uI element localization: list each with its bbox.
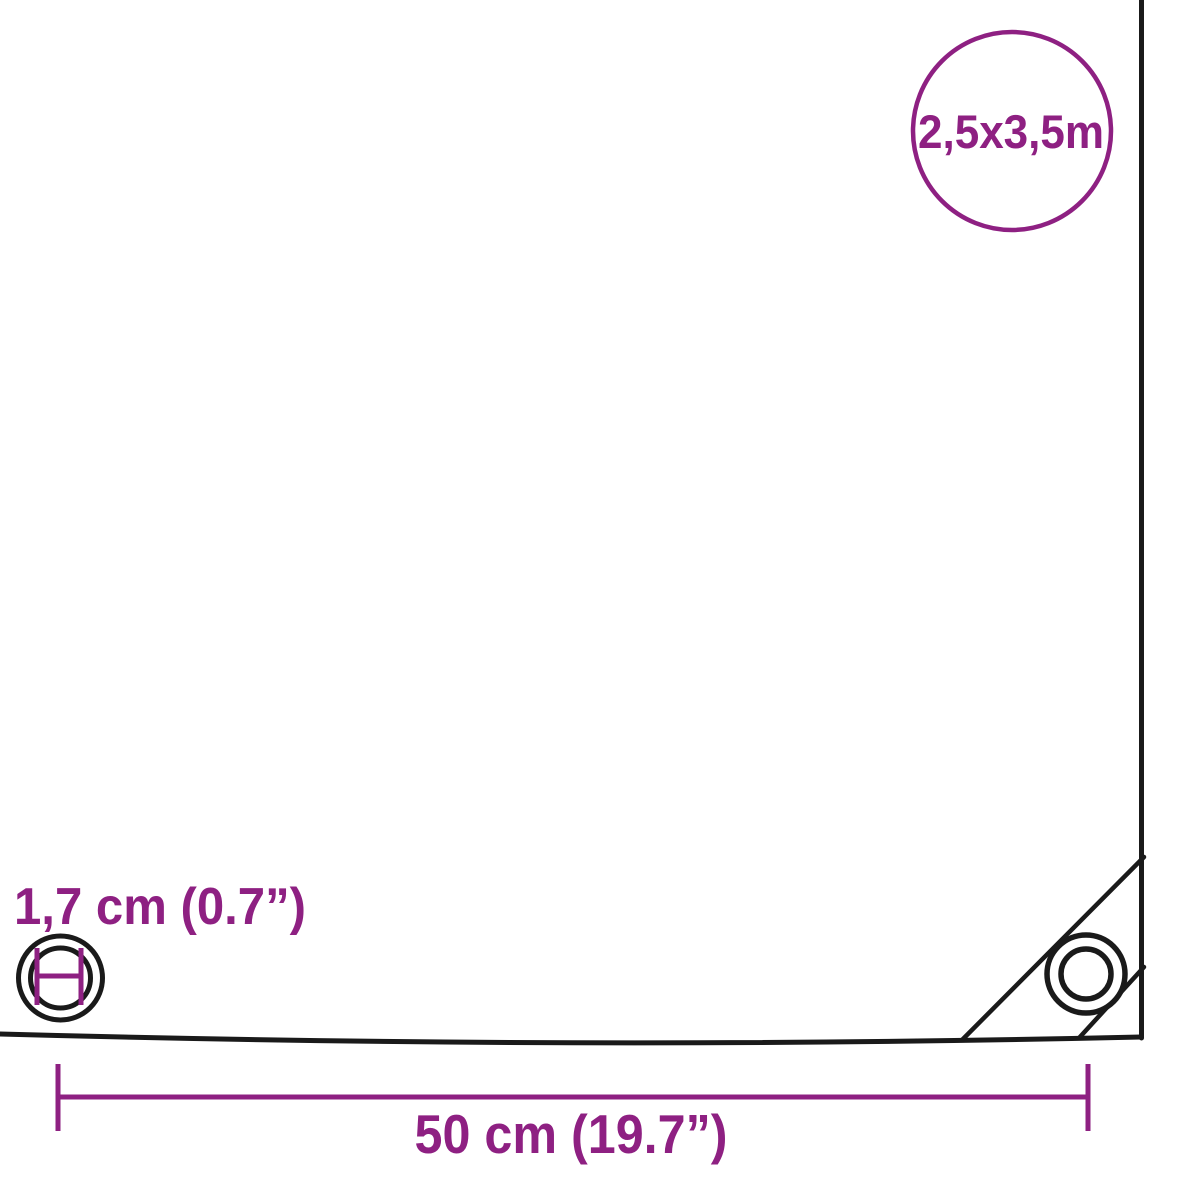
corner-eyelet-icon bbox=[1047, 935, 1125, 1013]
eyelet-diameter-icon bbox=[19, 936, 103, 1020]
tarp-bottom-edge bbox=[0, 1034, 1141, 1043]
eyelet-spacing-dimension: 50 cm (19.7”) bbox=[58, 1064, 1088, 1165]
size-badge: 2,5x3,5m bbox=[913, 32, 1111, 230]
tarp-dimension-diagram: 2,5x3,5m 1,7 cm (0.7”) 50 cm (19.7”) bbox=[0, 0, 1200, 1200]
eyelet-diameter-label: 1,7 cm (0.7”) bbox=[14, 878, 306, 936]
size-badge-label: 2,5x3,5m bbox=[918, 105, 1104, 158]
diagram-canvas: 2,5x3,5m 1,7 cm (0.7”) 50 cm (19.7”) bbox=[0, 0, 1200, 1200]
eyelet-spacing-label: 50 cm (19.7”) bbox=[415, 1103, 728, 1165]
